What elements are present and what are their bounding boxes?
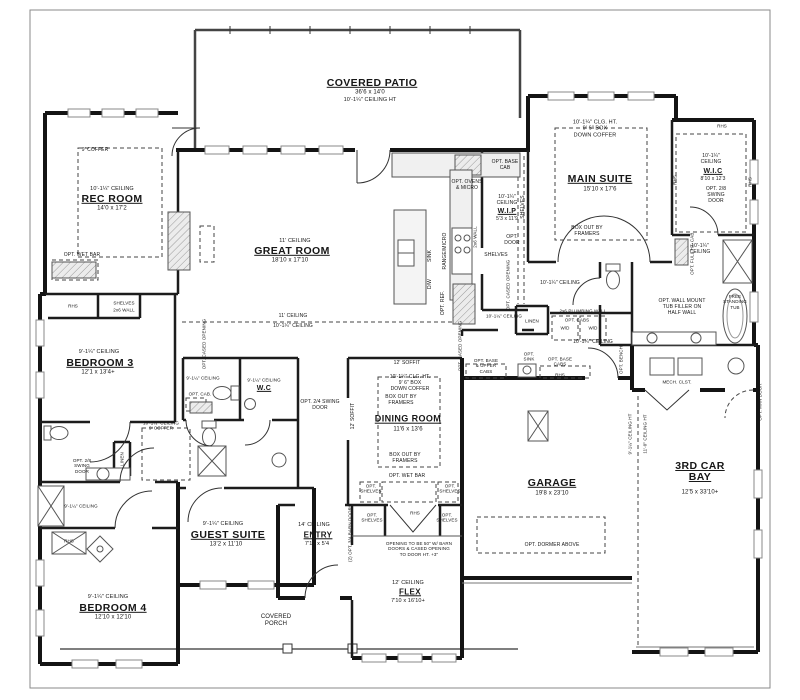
dining-wetbar-note: OPT. WET BAR bbox=[389, 474, 425, 480]
porch-name: COVERED PORCH bbox=[261, 614, 291, 628]
island-dw-label: D/W bbox=[428, 279, 434, 289]
garage-ceiling-note: 9'-1¼" CEILING HT bbox=[627, 414, 632, 455]
bed4-dims: 12'10 x 12'10 bbox=[95, 614, 132, 621]
dining-boxout-note-1: BOX OUT BY FRAMERS bbox=[385, 395, 416, 407]
patio-dims: 36'6 x 14'0 bbox=[355, 89, 385, 96]
bed3-dims: 12'1 x 13'4+ bbox=[81, 369, 114, 376]
pantry-shelves-label: SHELVES bbox=[521, 195, 527, 218]
closet-shelves-label: SHELVES bbox=[113, 300, 134, 305]
garage-name: GARAGE bbox=[528, 477, 577, 489]
pantry-opt-door-note: OPT. DOOR bbox=[504, 235, 519, 247]
wic-rhs-right: RHS bbox=[747, 177, 752, 187]
guest-ceiling: 9'-1¼" CEILING bbox=[203, 521, 243, 527]
dining-dims: 11'6 x 13'6 bbox=[393, 426, 422, 433]
hall-bath-ceiling: 9'-1¼" CEILING bbox=[64, 503, 97, 508]
bed4-closet-rhs: RHS bbox=[64, 538, 74, 543]
flex-closet-rhs: RHS bbox=[410, 510, 420, 515]
closet-rhs-label: RHS bbox=[68, 303, 78, 308]
flex-dims: 7'10 x 16'10+ bbox=[391, 598, 425, 604]
wic-name: W.I.C bbox=[703, 168, 722, 176]
garage-dims: 19'8 x 23'10 bbox=[535, 490, 568, 497]
hall-coffer-note: 10'-1¼" CEILING 9' COFFER bbox=[143, 421, 179, 432]
hall-swing-door-note: OPT. 2/8 SWING DOOR bbox=[73, 458, 91, 474]
entry-dims: 7'10 x 5'4 bbox=[305, 541, 329, 547]
island-sink-label: SINK bbox=[428, 250, 434, 262]
laundry-plumbing-wall-note: 2x6 PLUMBING WALL bbox=[559, 308, 606, 313]
dining-name: DINING ROOM bbox=[375, 414, 441, 425]
mud-bench-note: OPT. BENCH bbox=[618, 346, 623, 374]
rec-coffer-note: 9' COFFER bbox=[82, 148, 109, 154]
washer-label: W/D bbox=[560, 325, 569, 330]
bay-dims: 12'5 x 33'10+ bbox=[682, 489, 719, 496]
suite-boxout-note: BOX OUT BY FRAMERS bbox=[571, 226, 602, 238]
kitchen-ovens-note: OPT. OVENS & MICRO bbox=[451, 180, 482, 192]
bath-tub-filler-note: OPT. WALL MOUNT TUB FILLER ON HALF WALL bbox=[659, 299, 706, 317]
mud-base-upper-cabs-note: OPT. BASE & UPPER CABS bbox=[474, 358, 498, 374]
wic-rhs-left: RHS bbox=[672, 175, 677, 185]
suite-ceiling: 10'-1¼" CLG. HT. 9' 6" BOX DOWN COFFER bbox=[573, 119, 617, 138]
wic-ceiling: 10'-1¼" CEILING bbox=[701, 154, 722, 166]
great-split-upper: 11' CEILING bbox=[279, 314, 308, 320]
mud-base-cabs-note: OPT. BASE CABS bbox=[548, 357, 572, 368]
cased-opening-note-kitchen: OPT. CASED OPENING bbox=[505, 260, 510, 311]
bath-free-tub-label: FREE STANDING TUB bbox=[723, 294, 747, 310]
wic-dims: 8'10 x 12'3 bbox=[701, 177, 726, 183]
dining-soffit-top: 12' SOFFIT bbox=[394, 361, 421, 367]
closet-wall-note: 2x6 WALL bbox=[113, 307, 134, 312]
dryer-label: W/D bbox=[588, 325, 597, 330]
kitchen-fridge-note: OPT. REF. bbox=[441, 291, 447, 315]
linen-hall-ceiling: 10'-1¼" CEILING bbox=[486, 313, 522, 318]
flex-barn-doors-note: (2) OPT. 3/4 BARN DOORS bbox=[347, 504, 352, 562]
rec-dims: 14'0 x 17'2 bbox=[97, 205, 127, 212]
hall-linen-label: LINEN bbox=[119, 452, 124, 466]
kitchen-base-cab-note: OPT. BASE CAB bbox=[492, 160, 519, 172]
mud-ceiling: 10'-1¼" CEILING bbox=[573, 340, 613, 346]
suite-hall-ceiling: 10'-1¼" CEILING bbox=[540, 281, 580, 287]
wc-swing-door-note: OPT. 2/4 SWING DOOR bbox=[300, 400, 339, 412]
mud-opt-sink-note: OPT. SINK bbox=[524, 352, 535, 363]
laundry-opt-cabs-note: OPT. CABS bbox=[565, 317, 589, 322]
great-split-lower: 10'-1¼" CEILING bbox=[273, 324, 313, 330]
wic-door-note: OPT. 2/8 SWING DOOR bbox=[706, 187, 726, 205]
guest-name: GUEST SUITE bbox=[191, 529, 265, 541]
dining-boxout-note-2: BOX OUT BY FRAMERS bbox=[389, 453, 420, 465]
bath-ceiling: 10'-1¼" CEILING bbox=[690, 244, 711, 256]
cased-opening-note-hall: OPT. CASED OPENING bbox=[201, 319, 206, 370]
bed4-name: BEDROOM 4 bbox=[79, 602, 146, 614]
cased-opening-note-dining: OPT. CASED OPENING bbox=[457, 321, 462, 372]
great-dims: 18'10 x 17'10 bbox=[272, 257, 309, 264]
bath3-opt-cab-note: OPT. CAB. bbox=[189, 391, 212, 396]
suite-name: MAIN SUITE bbox=[568, 173, 633, 185]
bay-man-door-note: OPT. MAN DOOR bbox=[757, 383, 762, 420]
patio-ceiling: 10'-1¼" CEILING HT bbox=[344, 97, 397, 103]
flex-shelves-left: OPT. SHELVES bbox=[361, 513, 382, 524]
rec-ceiling: 10'-1¼" CEILING bbox=[90, 186, 134, 192]
pantry-shelves-label-2: SHELVES bbox=[484, 253, 507, 259]
mech-closet-name: MECH. CLST. bbox=[662, 379, 691, 384]
garage-door-lines bbox=[462, 583, 754, 647]
dining-ceiling: 10'-1¼" CLG. HT. 9' 6" BOX DOWN COFFER bbox=[390, 375, 430, 393]
pantry-name: W.I.P bbox=[498, 208, 517, 216]
bath3-ceiling: 9'-1¼" CEILING bbox=[186, 375, 219, 380]
dining-shelves-right: OPT. SHELVES bbox=[439, 484, 460, 495]
great-name: GREAT ROOM bbox=[254, 245, 330, 257]
garage-dormer-note: OPT. DORMER ABOVE bbox=[525, 543, 580, 549]
dining-soffit-left: 12' SOFFIT bbox=[351, 403, 357, 430]
wic-rhs-top: RHS bbox=[717, 123, 727, 128]
entry-name: ENTRY bbox=[304, 530, 333, 539]
guest-dims: 13'2 x 11'10 bbox=[210, 541, 243, 548]
mud-rhs-label: RHS bbox=[555, 372, 565, 377]
rec-wetbar-note: OPT. WET BAR bbox=[64, 253, 100, 259]
flex-ceiling: 12' CEILING bbox=[392, 580, 424, 586]
bed4-ceiling: 9'-1¼" CEILING bbox=[88, 594, 128, 600]
rec-name: REC ROOM bbox=[82, 193, 143, 205]
flex-name: FLEX bbox=[399, 587, 421, 596]
bay-name: 3RD CAR BAY bbox=[671, 461, 729, 483]
laundry-linen-label: LINEN bbox=[525, 318, 539, 323]
dining-shelves-left: OPT. SHELVES bbox=[360, 484, 381, 495]
flex-shelves-right: OPT. SHELVES bbox=[436, 513, 457, 524]
flex-opening-note: OPENING TO BE 50" W/ BARN DOORS & CASED … bbox=[386, 541, 452, 557]
floor-plan: COVERED PATIO 36'6 x 14'0 10'-1¼" CEILIN… bbox=[0, 0, 800, 700]
kitchen-wall-note: 2x6 WALL bbox=[472, 226, 477, 247]
bed3-name: BEDROOM 3 bbox=[66, 357, 133, 369]
wc-ceiling: 9'-1¼" CEILING bbox=[247, 377, 280, 382]
bed3-ceiling: 9'-1¼" CEILING bbox=[79, 349, 119, 355]
pantry-ceiling: 10'-1¼" CEILING bbox=[497, 195, 518, 207]
suite-dims: 15'10 x 17'6 bbox=[583, 186, 616, 193]
bay-ceiling-note: 11'-0" CEILING HT bbox=[642, 414, 647, 453]
wc-name: W.C bbox=[257, 385, 271, 393]
entry-ceiling: 14' CEILING bbox=[298, 522, 330, 528]
patio-name: COVERED PATIO bbox=[327, 77, 418, 89]
great-ceiling: 11' CEILING bbox=[279, 238, 310, 244]
pantry-dims: 5'3 x 11'9 bbox=[496, 217, 518, 223]
kitchen-range-note: RANGE/MICRO bbox=[443, 233, 449, 270]
porch-post bbox=[283, 644, 292, 653]
